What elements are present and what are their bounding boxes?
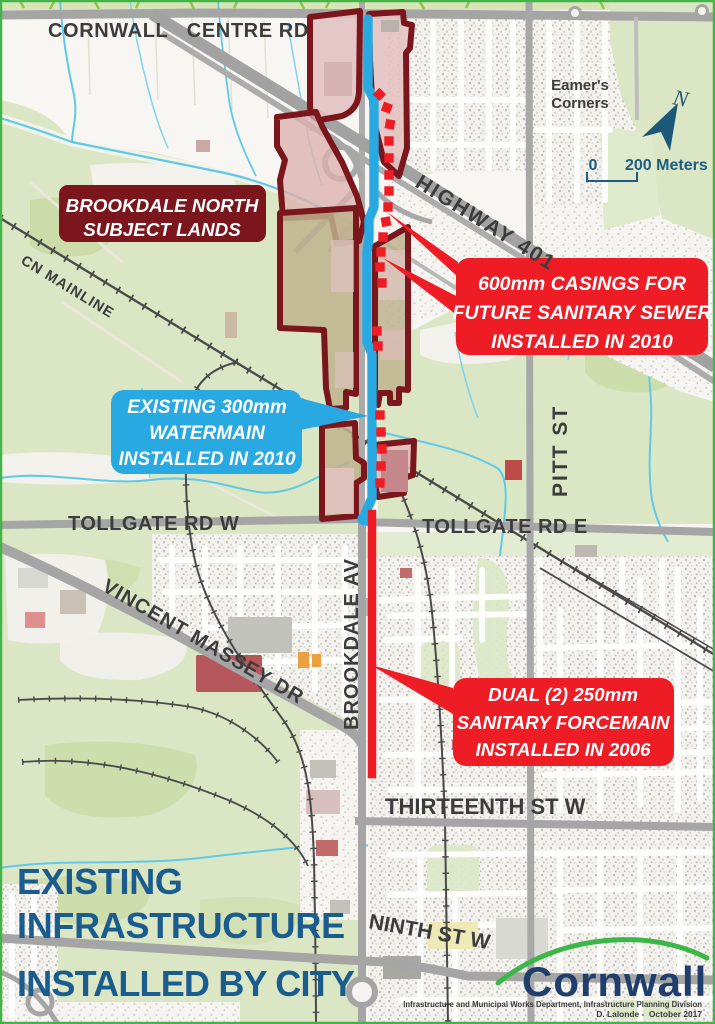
svg-text:TOLLGATE RD E: TOLLGATE RD E [422, 516, 588, 538]
svg-text:FUTURE SANITARY SEWER: FUTURE SANITARY SEWER [453, 302, 712, 324]
svg-text:200 Meters: 200 Meters [625, 157, 708, 174]
svg-text:Infrastructure and Municipal W: Infrastructure and Municipal Works Depar… [403, 1000, 702, 1009]
svg-text:INFRASTRUCTURE: INFRASTRUCTURE [17, 905, 345, 946]
svg-text:CORNWALL CENTRE RD: CORNWALL CENTRE RD [48, 20, 309, 42]
svg-text:SUBJECT LANDS: SUBJECT LANDS [83, 219, 241, 240]
svg-text:SANITARY FORCEMAIN: SANITARY FORCEMAIN [457, 712, 670, 733]
svg-text:INSTALLED IN 2010: INSTALLED IN 2010 [491, 331, 673, 353]
svg-text:PITT ST: PITT ST [549, 405, 572, 497]
svg-text:EXISTING: EXISTING [17, 861, 183, 902]
svg-text:Cornwall: Cornwall [522, 958, 707, 1005]
svg-text:WATERMAIN: WATERMAIN [149, 423, 266, 444]
svg-text:INSTALLED IN 2006: INSTALLED IN 2006 [476, 739, 652, 760]
svg-text:Eamer's: Eamer's [551, 77, 609, 94]
svg-text:D. Lalonde - October 2017: D. Lalonde - October 2017 [596, 1009, 702, 1019]
svg-text:DUAL (2) 250mm: DUAL (2) 250mm [488, 684, 638, 705]
svg-text:BROOKDALE AV: BROOKDALE AV [341, 558, 363, 730]
svg-text:600mm CASINGS FOR: 600mm CASINGS FOR [478, 273, 686, 295]
svg-text:0: 0 [589, 157, 598, 174]
svg-text:TOLLGATE RD W: TOLLGATE RD W [68, 513, 239, 535]
svg-text:BROOKDALE NORTH: BROOKDALE NORTH [66, 195, 259, 216]
svg-text:Corners: Corners [551, 95, 609, 112]
svg-text:INSTALLED BY CITY: INSTALLED BY CITY [17, 963, 355, 1004]
svg-text:INSTALLED IN 2010: INSTALLED IN 2010 [118, 449, 295, 470]
svg-text:THIRTEENTH ST W: THIRTEENTH ST W [385, 794, 586, 819]
svg-text:EXISTING 300mm: EXISTING 300mm [127, 397, 287, 418]
